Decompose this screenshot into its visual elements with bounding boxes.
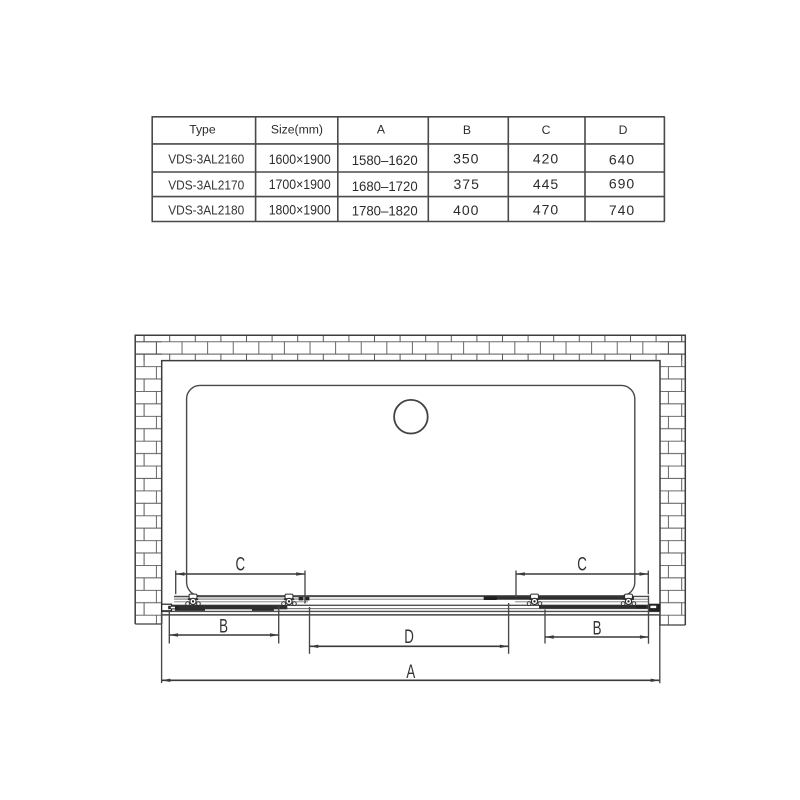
- svg-text:A: A: [406, 662, 415, 683]
- svg-text:B: B: [219, 616, 228, 637]
- svg-text:C: C: [577, 554, 587, 575]
- svg-text:VDS-3AL2170: VDS-3AL2170: [168, 178, 244, 192]
- svg-text:690: 690: [609, 175, 635, 191]
- svg-text:1680–1720: 1680–1720: [352, 178, 418, 194]
- svg-text:Size(mm): Size(mm): [271, 123, 323, 137]
- svg-text:1800×1900: 1800×1900: [269, 202, 331, 218]
- svg-text:A: A: [377, 123, 386, 137]
- svg-text:470: 470: [533, 202, 559, 218]
- svg-text:740: 740: [609, 202, 635, 218]
- svg-text:VDS-3AL2160: VDS-3AL2160: [168, 152, 244, 166]
- svg-text:VDS-3AL2180: VDS-3AL2180: [168, 204, 244, 218]
- svg-text:D: D: [619, 123, 628, 137]
- svg-text:1600×1900: 1600×1900: [269, 151, 331, 167]
- svg-text:C: C: [236, 554, 246, 575]
- svg-text:375: 375: [454, 176, 480, 192]
- svg-text:D: D: [404, 627, 414, 648]
- svg-text:420: 420: [533, 151, 559, 167]
- svg-text:1580–1620: 1580–1620: [352, 152, 418, 168]
- svg-text:400: 400: [453, 202, 479, 218]
- svg-text:Type: Type: [189, 123, 216, 137]
- svg-text:1700×1900: 1700×1900: [269, 176, 331, 192]
- svg-text:B: B: [463, 123, 471, 137]
- svg-text:445: 445: [533, 176, 559, 192]
- svg-text:350: 350: [453, 151, 479, 167]
- svg-text:C: C: [542, 123, 551, 137]
- svg-text:640: 640: [609, 152, 635, 168]
- svg-text:B: B: [593, 618, 602, 639]
- svg-text:1780–1820: 1780–1820: [352, 203, 418, 219]
